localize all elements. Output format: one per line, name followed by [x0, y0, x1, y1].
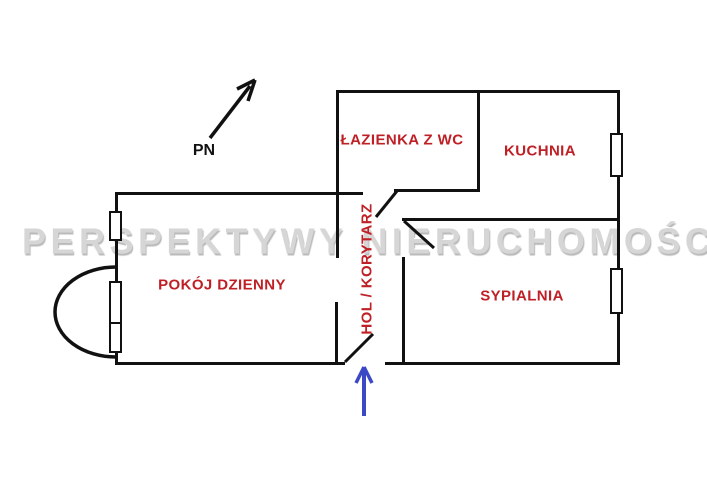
label-living-room: POKÓJ DZIENNY: [158, 277, 286, 294]
wall-hall-left-lower: [335, 302, 338, 365]
label-hall: HOL / KORYTARZ: [359, 203, 376, 334]
window-living-room-upper: [109, 211, 122, 241]
window-mullion: [111, 322, 120, 324]
wall-bottom-west: [115, 362, 345, 365]
wall-east: [617, 90, 620, 365]
wall-living-room-top: [115, 192, 363, 195]
bathroom-door-swing: [376, 191, 397, 217]
wall-bottom-east: [385, 362, 620, 365]
floor-plan: PERSPEKTYWY NIERUCHOMOŚCI ŁAZIENKA Z WC …: [0, 0, 707, 500]
entrance-door-swing: [345, 334, 373, 362]
window-living-room-lower: [109, 281, 122, 353]
plan-line-graphics: [0, 0, 707, 500]
label-bathroom: ŁAZIENKA Z WC: [341, 132, 464, 149]
bedroom-door-swing: [404, 221, 434, 248]
window-kitchen: [610, 133, 623, 177]
label-north: PN: [193, 142, 215, 160]
window-bedroom: [610, 268, 623, 314]
wall-bathroom-hall-left: [336, 90, 339, 258]
balcony-arc: [55, 267, 116, 357]
label-kitchen: KUCHNIA: [504, 143, 576, 160]
wall-kitchen-bottom: [402, 218, 620, 221]
wall-bathroom-bottom: [394, 189, 480, 192]
north-arrow-shaft: [210, 86, 250, 138]
label-bedroom: SYPIALNIA: [480, 288, 564, 305]
wall-bathroom-kitchen-divider: [477, 90, 480, 192]
wall-bedroom-left: [402, 257, 405, 365]
